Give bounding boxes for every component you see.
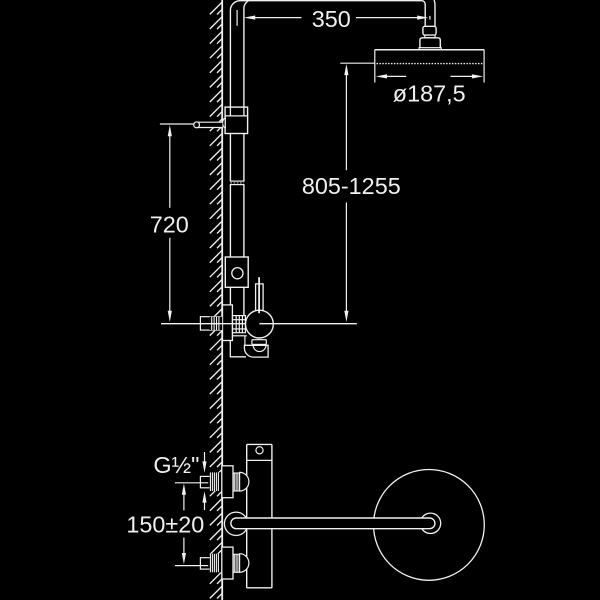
- svg-text:350: 350: [312, 6, 351, 32]
- svg-text:150±20: 150±20: [126, 512, 204, 538]
- svg-text:805-1255: 805-1255: [302, 173, 401, 199]
- svg-text:G½": G½": [153, 452, 199, 478]
- svg-text:720: 720: [150, 212, 189, 238]
- svg-text:ø187,5: ø187,5: [393, 80, 466, 106]
